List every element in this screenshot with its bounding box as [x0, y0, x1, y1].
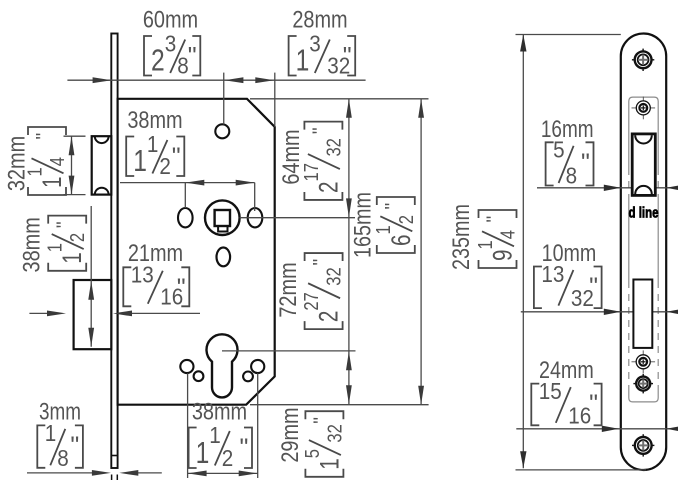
svg-text:": ": [311, 417, 332, 424]
svg-text:8: 8: [566, 163, 578, 189]
svg-text:38mm: 38mm: [127, 107, 182, 134]
svg-text:3: 3: [309, 30, 321, 56]
svg-text:": ": [484, 216, 505, 223]
svg-text:32: 32: [324, 424, 346, 442]
svg-text:": ": [188, 43, 197, 71]
svg-text:1: 1: [37, 177, 67, 189]
svg-text:5: 5: [553, 137, 565, 163]
svg-text:4: 4: [47, 157, 69, 166]
svg-text:27: 27: [301, 292, 323, 310]
svg-text:": ": [70, 432, 79, 460]
svg-text:38mm: 38mm: [18, 217, 45, 272]
svg-text:5: 5: [302, 449, 324, 458]
svg-text:1: 1: [45, 420, 57, 446]
svg-text:": ": [310, 127, 331, 134]
svg-text:29mm: 29mm: [277, 407, 304, 462]
svg-text:1: 1: [209, 422, 221, 448]
svg-text:235mm: 235mm: [448, 204, 475, 270]
svg-text:16mm: 16mm: [541, 116, 594, 143]
svg-text:2: 2: [222, 445, 234, 471]
svg-text:13: 13: [541, 261, 564, 287]
svg-text:1: 1: [57, 252, 87, 264]
svg-text:2: 2: [67, 233, 89, 242]
svg-text:": ": [589, 390, 598, 418]
svg-text:1: 1: [314, 458, 344, 470]
svg-text:32: 32: [323, 138, 345, 156]
svg-text:1: 1: [24, 167, 46, 176]
svg-text:8: 8: [57, 445, 69, 471]
svg-text:32: 32: [324, 267, 346, 285]
svg-text:1: 1: [45, 243, 67, 252]
svg-text:d line: d line: [629, 206, 659, 222]
svg-text:32mm: 32mm: [3, 136, 30, 191]
svg-text:1: 1: [296, 43, 310, 78]
svg-text:2: 2: [159, 153, 171, 179]
svg-text:": ": [382, 203, 403, 210]
svg-text:2: 2: [396, 215, 418, 224]
svg-text:1: 1: [196, 435, 210, 470]
svg-text:": ": [589, 273, 598, 301]
svg-text:9: 9: [488, 250, 518, 262]
svg-text:17: 17: [301, 163, 323, 181]
svg-text:1: 1: [373, 225, 395, 234]
svg-text:": ": [172, 143, 181, 171]
svg-text:2: 2: [313, 181, 343, 193]
svg-text:16: 16: [568, 402, 591, 428]
svg-text:": ": [34, 133, 55, 140]
svg-text:15: 15: [539, 378, 562, 404]
svg-text:": ": [240, 434, 249, 462]
svg-text:1: 1: [147, 131, 159, 157]
svg-text:": ": [581, 149, 590, 177]
svg-text:": ": [177, 274, 186, 302]
svg-text:165mm: 165mm: [350, 192, 377, 258]
svg-text:3: 3: [165, 30, 177, 56]
svg-text:1: 1: [475, 240, 497, 249]
svg-text:": ": [54, 221, 75, 228]
svg-text:1: 1: [133, 143, 147, 178]
svg-text:2: 2: [151, 43, 165, 78]
svg-text:6: 6: [386, 235, 416, 247]
svg-text:4: 4: [498, 230, 520, 239]
svg-text:72mm: 72mm: [275, 262, 302, 317]
svg-text:": ": [343, 43, 352, 71]
svg-text:2: 2: [314, 311, 344, 323]
svg-text:13: 13: [131, 262, 154, 288]
svg-text:": ": [310, 259, 331, 266]
